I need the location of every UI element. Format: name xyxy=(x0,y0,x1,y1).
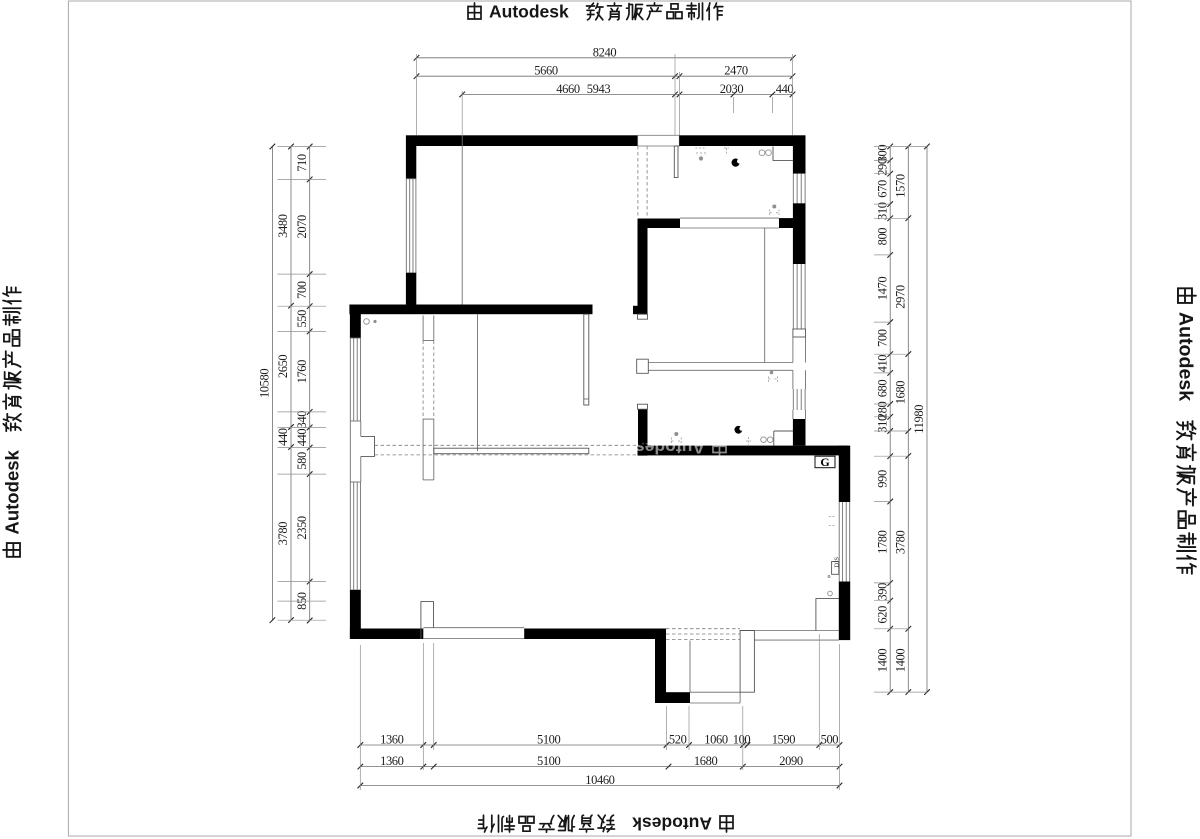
svg-text:680: 680 xyxy=(875,380,889,398)
svg-text:5100: 5100 xyxy=(537,754,561,768)
svg-text:2350: 2350 xyxy=(295,516,309,540)
svg-text:990: 990 xyxy=(875,470,889,488)
svg-text:440: 440 xyxy=(295,429,309,447)
svg-text:8240: 8240 xyxy=(593,45,617,59)
svg-text:2030: 2030 xyxy=(720,82,744,96)
svg-text:1570: 1570 xyxy=(894,174,908,198)
svg-text:4660: 4660 xyxy=(556,82,580,96)
svg-text:1760: 1760 xyxy=(295,360,309,384)
svg-text:1060: 1060 xyxy=(704,733,728,747)
svg-text:1400: 1400 xyxy=(875,649,889,673)
svg-text:710: 710 xyxy=(295,154,309,172)
svg-text:410: 410 xyxy=(875,355,889,373)
svg-text:580: 580 xyxy=(295,452,309,470)
svg-text:3780: 3780 xyxy=(894,531,908,555)
svg-text:5100: 5100 xyxy=(537,733,561,747)
svg-text:1590: 1590 xyxy=(772,733,796,747)
svg-text:2470: 2470 xyxy=(724,64,748,78)
svg-text:2970: 2970 xyxy=(894,285,908,309)
svg-text:700: 700 xyxy=(875,329,889,347)
svg-text:520: 520 xyxy=(669,733,687,747)
svg-text:390: 390 xyxy=(875,583,889,601)
svg-text:2090: 2090 xyxy=(779,754,803,768)
svg-text:2070: 2070 xyxy=(295,215,309,239)
svg-text:11980: 11980 xyxy=(912,405,926,434)
svg-text:3480: 3480 xyxy=(276,214,290,238)
svg-text:10460: 10460 xyxy=(585,773,614,787)
svg-text:800: 800 xyxy=(875,228,889,246)
svg-text:440: 440 xyxy=(276,428,290,446)
svg-text:10580: 10580 xyxy=(258,369,272,398)
svg-text:5943: 5943 xyxy=(587,82,611,96)
svg-text:G: G xyxy=(820,455,829,469)
svg-text:3780: 3780 xyxy=(276,522,290,546)
svg-text:700: 700 xyxy=(295,281,309,299)
svg-text:310: 310 xyxy=(875,415,889,433)
svg-text:670: 670 xyxy=(875,180,889,198)
svg-text:550: 550 xyxy=(295,310,309,328)
svg-text:440: 440 xyxy=(776,82,794,96)
svg-text:100: 100 xyxy=(733,733,751,747)
svg-text:DIS: DIS xyxy=(834,557,841,568)
svg-text:1470: 1470 xyxy=(875,277,889,301)
svg-text:1680: 1680 xyxy=(694,754,718,768)
svg-text:1360: 1360 xyxy=(380,733,404,747)
svg-text:5660: 5660 xyxy=(534,64,558,78)
svg-text:1680: 1680 xyxy=(894,381,908,405)
svg-text:1360: 1360 xyxy=(380,754,404,768)
svg-text:500: 500 xyxy=(821,733,839,747)
svg-text:310: 310 xyxy=(875,202,889,220)
svg-text:1400: 1400 xyxy=(894,649,908,673)
svg-text:1780: 1780 xyxy=(875,530,889,554)
svg-text:2650: 2650 xyxy=(276,355,290,379)
svg-text:340: 340 xyxy=(295,411,309,429)
svg-text:620: 620 xyxy=(875,606,889,624)
